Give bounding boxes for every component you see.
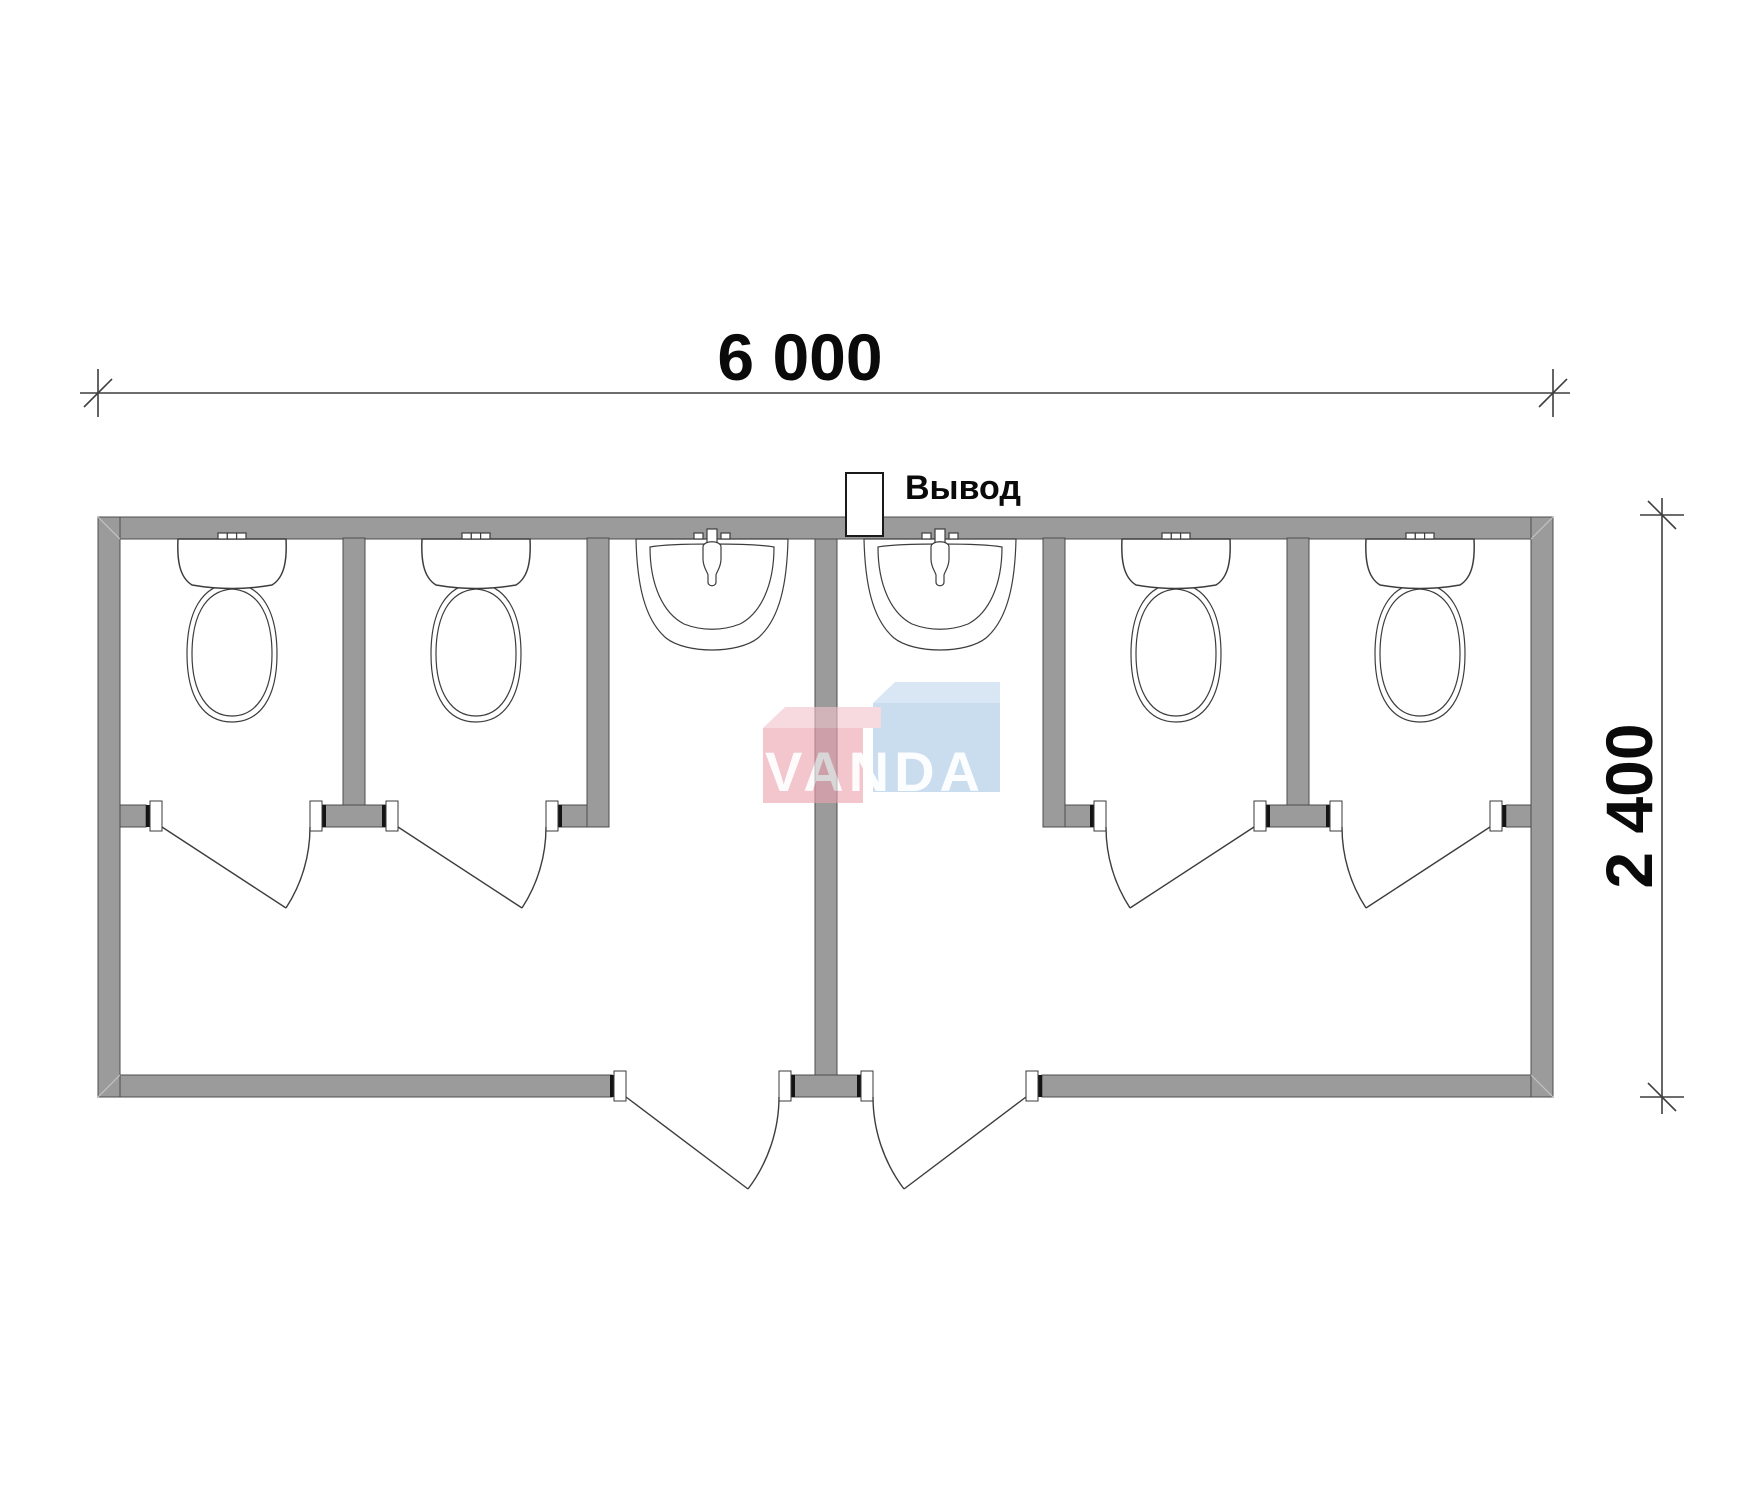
outlet-box <box>846 473 883 536</box>
width-dimension-label: 6 000 <box>717 320 882 394</box>
stall-front-stub-mid-right <box>1065 805 1094 827</box>
washbasin-fixture-2 <box>864 529 1016 650</box>
toilet-fixture-4 <box>1366 533 1474 722</box>
stall-door-1 <box>162 827 310 908</box>
toilet-fixture-3 <box>1122 533 1230 722</box>
brand-watermark: VANDA <box>763 682 1000 803</box>
outer-wall-top <box>120 517 1531 539</box>
stall-front-t-left <box>322 805 386 827</box>
brand-watermark-text: VANDA <box>765 740 985 803</box>
stall-front-stub-mid-left <box>558 805 587 827</box>
height-dimension-label: 2 400 <box>1592 723 1666 888</box>
outer-wall-bottom-left <box>120 1075 612 1097</box>
central-wall-foot <box>791 1075 861 1097</box>
stall-door-4 <box>1342 827 1490 908</box>
stall-front-stub-left <box>120 805 146 827</box>
toilet-fixture-1 <box>178 533 286 722</box>
width-dimension: 6 000 <box>80 320 1570 417</box>
stall-front-t-right <box>1266 805 1330 827</box>
washbasin-fixture-1 <box>636 529 788 650</box>
partition-sink-stall-3 <box>1043 538 1065 827</box>
partition-stall-2-sink <box>587 538 609 827</box>
height-dimension: 2 400 <box>1592 498 1684 1114</box>
page: Вывод 6 000 2 400 VANDA <box>0 0 1763 1503</box>
floor-plan-canvas: Вывод 6 000 2 400 VANDA <box>0 0 1763 1503</box>
partition-stall-3-4 <box>1287 538 1309 805</box>
entrance-door-left <box>626 1097 779 1189</box>
outer-wall-right <box>1531 517 1553 1097</box>
stall-door-2 <box>398 827 546 908</box>
toilet-fixture-2 <box>422 533 530 722</box>
outer-wall-left <box>98 517 120 1097</box>
outlet-label: Вывод <box>905 469 1021 507</box>
stall-door-3 <box>1106 827 1254 908</box>
entrance-door-right <box>873 1097 1026 1189</box>
partition-stall-1-2 <box>343 538 365 805</box>
outer-wall-bottom-right <box>1042 1075 1531 1097</box>
central-wall <box>815 539 837 1075</box>
stall-front-stub-right <box>1506 805 1531 827</box>
